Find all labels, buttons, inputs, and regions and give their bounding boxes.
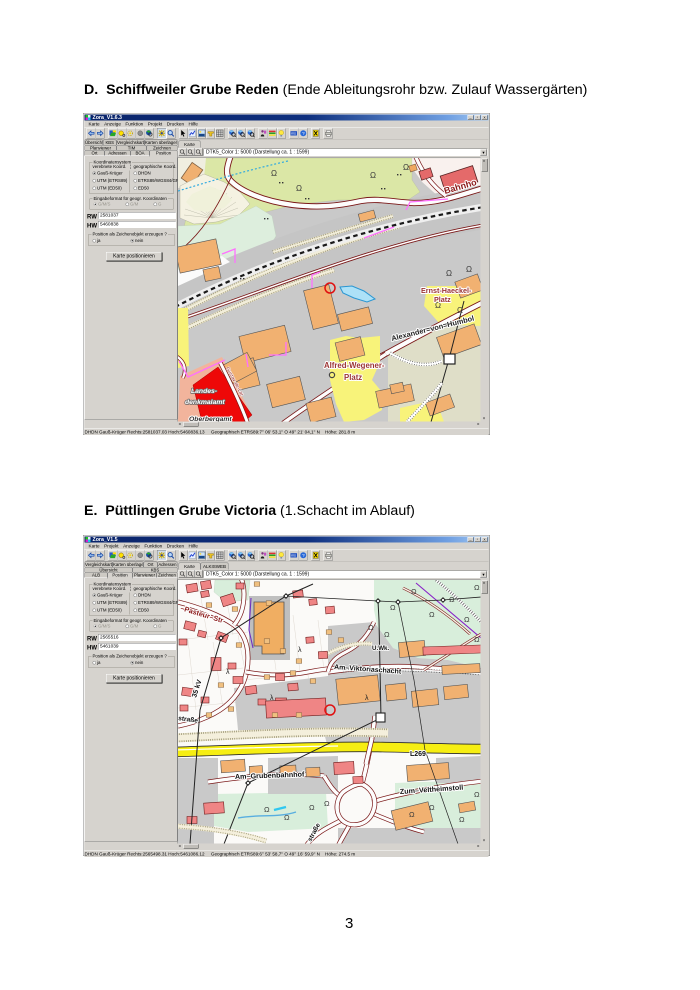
svg-text:Ω: Ω (409, 810, 415, 819)
svg-text:Ω: Ω (390, 603, 396, 612)
svg-text:Alfred-Wegener-: Alfred-Wegener- (324, 361, 385, 370)
svg-text:Ω: Ω (459, 815, 465, 824)
svg-text:Platz: Platz (344, 373, 362, 382)
svg-text:Ω: Ω (296, 184, 302, 193)
svg-text:Ω: Ω (446, 269, 452, 278)
svg-text:Ernst-Haeckel-: Ernst-Haeckel- (421, 286, 472, 295)
svg-text:ms: ms (291, 132, 296, 136)
svg-text:λ: λ (270, 695, 274, 702)
svg-text:Ω: Ω (466, 265, 472, 274)
svg-text:?: ? (302, 553, 305, 559)
svg-text:Ω: Ω (368, 623, 374, 632)
svg-text:Ω: Ω (284, 813, 290, 822)
svg-text:λ: λ (298, 647, 302, 654)
svg-text:Ω: Ω (271, 169, 277, 178)
svg-text:Ω: Ω (370, 171, 376, 180)
svg-text:Ω: Ω (429, 610, 435, 619)
svg-text:Ω: Ω (411, 587, 417, 596)
svg-text:ms: ms (291, 554, 296, 558)
svg-text:Ω: Ω (464, 615, 470, 624)
svg-text:Ω: Ω (429, 803, 435, 812)
svg-text:Ω: Ω (309, 803, 315, 812)
svg-text:Ω: Ω (324, 799, 330, 808)
svg-text:Ω: Ω (449, 595, 455, 604)
svg-text:Ω: Ω (474, 790, 480, 799)
svg-text:Ω: Ω (403, 163, 409, 172)
svg-text:λ: λ (365, 695, 369, 702)
svg-text:Ω: Ω (264, 805, 270, 814)
svg-text:λ: λ (226, 669, 230, 676)
svg-text:?: ? (302, 131, 305, 137)
svg-text:Landes-: Landes- (191, 388, 218, 395)
svg-text:denkmalamt: denkmalamt (185, 399, 225, 406)
svg-text:L269: L269 (410, 751, 426, 758)
svg-text:Ω: Ω (474, 635, 480, 644)
svg-text:Ω: Ω (474, 583, 480, 592)
svg-text:Ω: Ω (457, 306, 463, 315)
svg-text:U.Wk.: U.Wk. (372, 645, 389, 652)
svg-text:Ω: Ω (384, 630, 390, 639)
svg-text:Platz: Platz (434, 295, 451, 304)
